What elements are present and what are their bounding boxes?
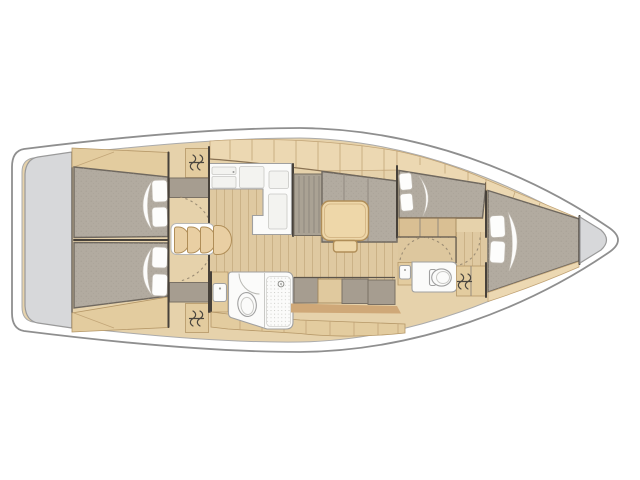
pillow: [152, 207, 168, 228]
pillow: [152, 247, 168, 269]
salon-table-leaf: [334, 241, 358, 253]
pillow: [152, 274, 168, 297]
galley-fridge-top: [269, 194, 288, 229]
salon-table: [322, 201, 369, 241]
pillow: [399, 173, 413, 191]
dressing-area-floor: [398, 238, 455, 262]
shower-head-icon: [280, 283, 282, 285]
galley-sink: [212, 167, 236, 175]
aft-cabinet-starboard: [170, 283, 209, 303]
floor-plan-page: [0, 0, 640, 480]
faucet: [404, 269, 406, 271]
forward-head-sink: [400, 266, 411, 280]
aft-cabinet-port: [170, 178, 209, 198]
faucet: [219, 287, 221, 289]
swim-platform: [25, 152, 72, 328]
galley-stove: [240, 167, 265, 189]
aft-head-sink: [213, 284, 227, 302]
sideboard-cabinet: [368, 280, 395, 305]
salon-cabinet: [294, 174, 322, 236]
pillow: [152, 180, 168, 203]
pillow: [489, 215, 505, 238]
boat-floor-plan-canvas: [0, 0, 640, 480]
galley-worktop: [269, 171, 289, 189]
sideboard-cabinet: [294, 278, 318, 304]
faucet: [233, 171, 235, 173]
pillow: [489, 241, 505, 264]
galley-sink: [212, 177, 236, 189]
pillow: [400, 193, 414, 212]
sideboard-cabinet-wood: [318, 279, 342, 303]
mid-cabin-cabinet: [399, 218, 456, 237]
sideboard-cabinet: [342, 279, 368, 304]
